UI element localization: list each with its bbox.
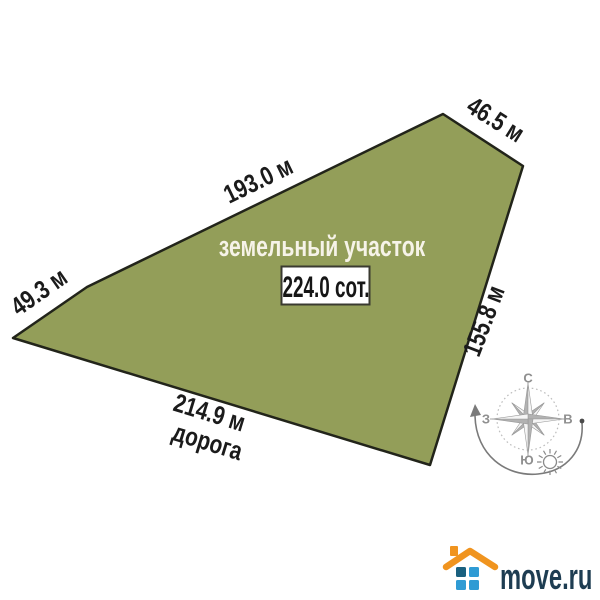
logo-square-tl xyxy=(456,567,466,577)
sun-path-arrowhead xyxy=(470,404,481,417)
plot-diagram: 193.0 м 46.5 м 49.3 м 155.8 м 214.9 м до… xyxy=(0,0,600,600)
compass-west-label: З xyxy=(482,412,490,427)
chimney-shape xyxy=(450,546,458,556)
moveru-house-icon xyxy=(446,546,495,590)
area-value: 224.0 сот. xyxy=(283,271,370,305)
compass-north-label: С xyxy=(523,371,533,386)
plot-diagram-canvas: 193.0 м 46.5 м 49.3 м 155.8 м 214.9 м до… xyxy=(0,0,600,600)
compass-rose: С Ю З В xyxy=(470,371,584,476)
compass-south-label: Ю xyxy=(520,453,533,468)
logo-wordmark: move.ru xyxy=(500,557,592,597)
land-plot: 193.0 м 46.5 м 49.3 м 155.8 м 214.9 м до… xyxy=(5,91,529,466)
logo-square-br xyxy=(469,580,479,590)
logo-square-bl xyxy=(456,580,466,590)
plot-title: земельный участок xyxy=(219,231,426,263)
logo-square-tr xyxy=(469,567,479,577)
moveru-logo[interactable]: move.ru xyxy=(446,546,592,597)
sun-icon xyxy=(537,449,563,475)
sun-path-start-dot xyxy=(580,419,585,424)
compass-east-label: В xyxy=(563,412,572,427)
